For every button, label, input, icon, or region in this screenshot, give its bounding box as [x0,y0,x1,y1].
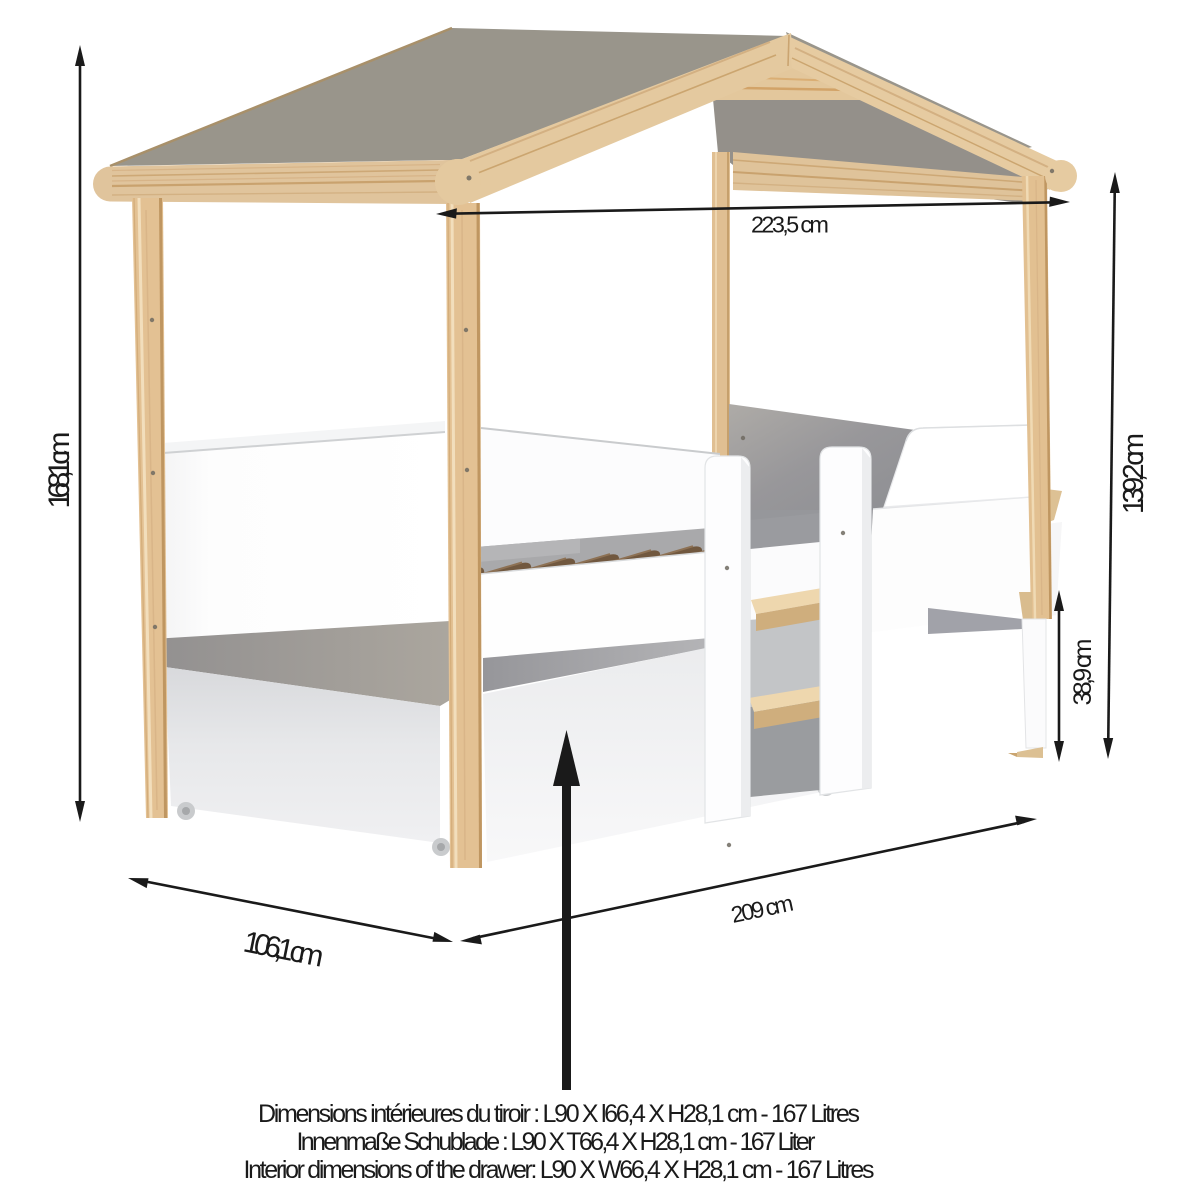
svg-text:168,1 cm: 168,1 cm [43,432,76,509]
svg-text:139,2 cm: 139,2 cm [1118,433,1150,514]
svg-text:Dimensions intérieures du tiro: Dimensions intérieures du tiroir : L90 X… [258,1100,860,1128]
svg-text:209 cm: 209 cm [729,889,796,927]
svg-text:106,1 cm: 106,1 cm [241,926,327,974]
svg-text:Interior dimensions of the dra: Interior dimensions of the drawer: L90 X… [244,1156,875,1184]
svg-text:38,9 cm: 38,9 cm [1069,639,1097,706]
svg-text:Innenmaße Schublade : L90 X T6: Innenmaße Schublade : L90 X T66,4 X H28,… [297,1128,816,1156]
svg-text:223,5 cm: 223,5 cm [751,212,829,238]
